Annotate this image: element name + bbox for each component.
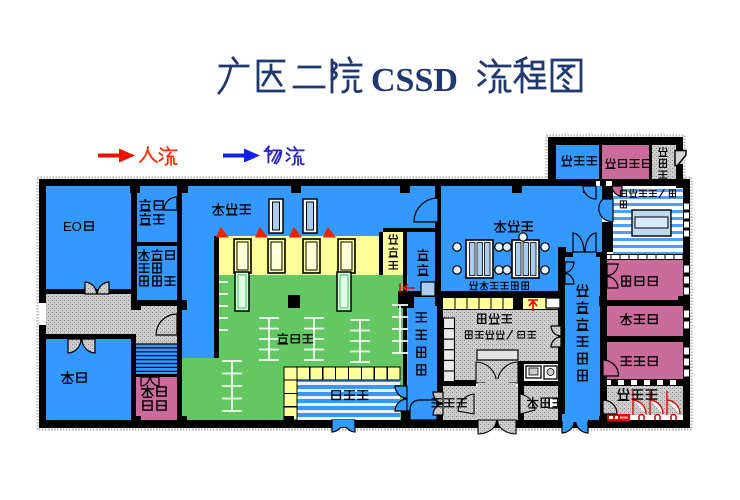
svg-text:EO: EO <box>63 219 82 234</box>
svg-text:CSSD: CSSD <box>371 62 458 99</box>
